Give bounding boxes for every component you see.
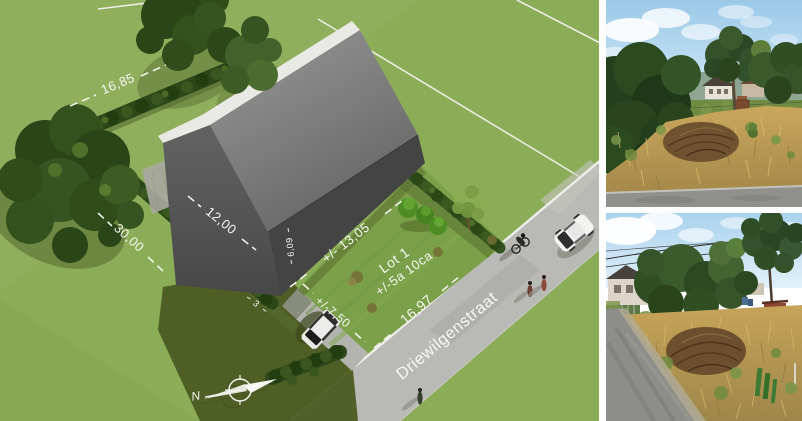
site-plan-render: N 16,85 30,00 12,00 6,09 3 +/- 13,05 + bbox=[0, 0, 602, 421]
composite-svg: N 16,85 30,00 12,00 6,09 3 +/- 13,05 + bbox=[0, 0, 802, 421]
divider-horizontal bbox=[599, 207, 802, 213]
blue-barrel bbox=[748, 299, 753, 306]
photo-overgrown-lot-aerial bbox=[582, 0, 802, 207]
listing-composite-image: N 16,85 30,00 12,00 6,09 3 +/- 13,05 + bbox=[0, 0, 802, 421]
blue-barrel bbox=[742, 297, 748, 305]
dimension-house-depth: 6,09 bbox=[284, 237, 296, 257]
photo-overgrown-lot-street bbox=[596, 209, 802, 421]
bramble-mound bbox=[663, 122, 739, 162]
